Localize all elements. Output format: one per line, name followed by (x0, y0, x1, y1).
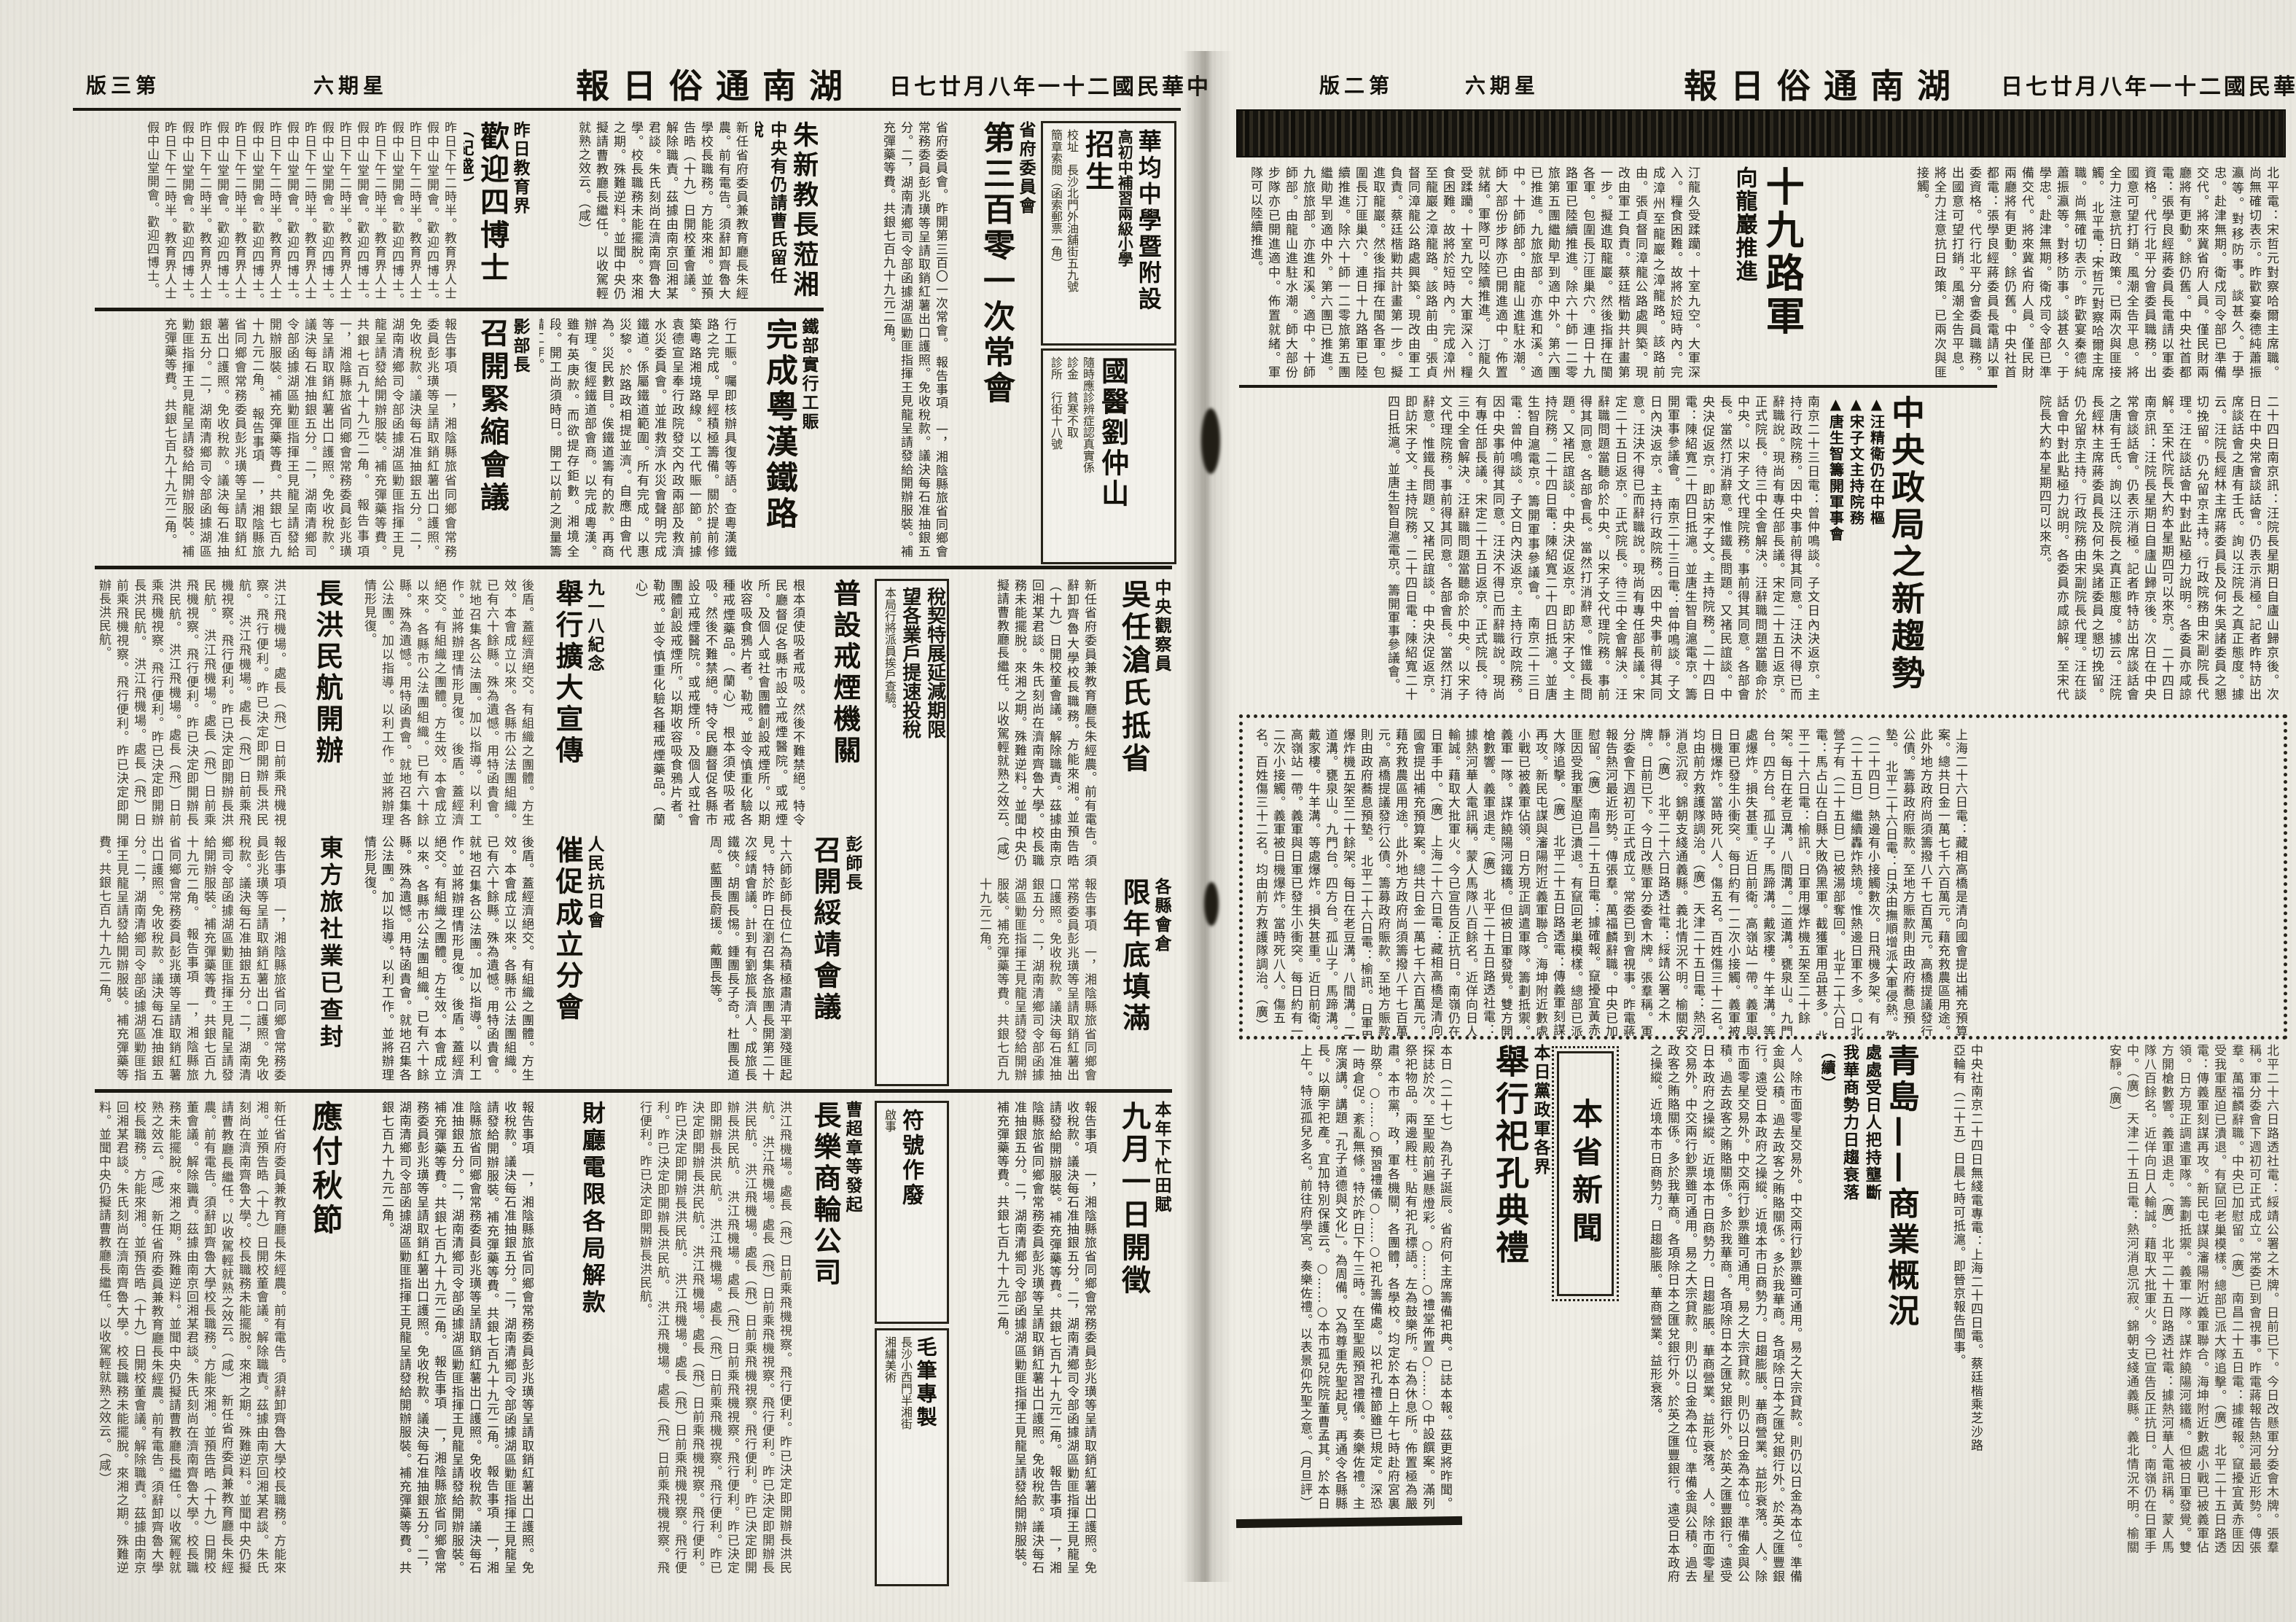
article-body-sacrifice: 本日（二十七）為孔子誕辰。省府何主席籌備祀典。已誌本報。茲更將昨聞。探誌於次。至… (1239, 1044, 1453, 1510)
article-text: 南京二十三日電：曾仲鳴談。子文日內決返京。主持行政院務。因中央事前得其同意。汪決… (1385, 395, 1819, 701)
article-body-railway: 行工賑。囑即核辦具復等語。查粵漢鐵路之完成。早經積極籌備。關於提前修築粵路湘境路… (539, 318, 738, 558)
article-text: 本日（二十七）為孔子誕辰。省府何主席籌備祀典。已誌本報。茲更將昨聞。探誌於次。至… (1297, 1044, 1452, 1510)
headline-main: 普設戒煙機關 (829, 579, 860, 827)
article-text: 洪江飛機場。處長（飛）日前乘飛機視察。飛行便利。昨已決定即開辦長洪民航。 洪江飛… (637, 1101, 792, 1575)
headline-main: 朱新教長蒞湘 (789, 121, 818, 300)
ad-school: 華均中學暨附設 高初中補習兩級小學 招生 校址 長沙北門外油舖街五九號 簡章索閱… (1041, 121, 1176, 346)
headline-sub: 我華商勢力日趨衰落 (1838, 1044, 1860, 1452)
headline-sub: 向龍巖推進 (1729, 166, 1760, 407)
dateline-right: 中華民國二十一年八月廿七日 (2001, 69, 2296, 101)
article-body-qingdao-wire: 中央社南京二十四日無綫電專電：上海二十四日電。蔡廷楷乘芝沙路亞輪有（二十五）日晨… (1923, 1044, 1984, 1452)
headline-main: 舉行擴大宣傳 (551, 579, 582, 827)
headline-kicker: 本年下忙田賦 (1149, 1101, 1172, 1392)
headline-main: 召開綏靖會議 (809, 835, 840, 1082)
wire-briefs: 上海二十六日電：藏相高橋是清向國會提出補充預算案。總共日金一萬七千六百萬元。藉充… (1243, 718, 1977, 1040)
page-gutter (1182, 51, 1233, 1582)
article-body-autumn: 新任省府委員兼教育廳長朱經農。前有電告。須辭卸齊魯大學校長職務。方能來湘。並預告… (95, 1101, 287, 1575)
article-body-treasury: 報告事項 一，湘陰縣旅省同鄉會常務委員彭兆璜等呈請取銷紅薯出口護照。免收稅款。議… (350, 1101, 535, 1575)
headline-main: 九月一日開徵 (1117, 1101, 1149, 1392)
article-text: 報告事項 一，湘陰縣旅省同鄉會常務委員彭兆璜等呈請取銷紅薯出口護照。免收稅款。議… (977, 878, 1096, 1082)
article-text: 新任省府委員兼教育廳長朱經農。前有電告。須辭卸齊魯大學校長職務。方能來湘。並預告… (96, 1101, 286, 1575)
weekday-label-left: 星期六 (313, 70, 388, 99)
headline-sub: （續） (1817, 1044, 1838, 1452)
headline-changle-shipping: 曹超章等發起 長樂商輪公司 (799, 1101, 863, 1392)
headline-sub: 中央有仍請曹氏留任說 (755, 121, 789, 300)
section-rule (1239, 385, 1997, 388)
masthead-right: 湖南通俗日報 (1684, 60, 1964, 108)
tax-org: 長沙省會稅務徵收局通告 (947, 587, 949, 1086)
scan-smudge (1201, 408, 1220, 474)
inked-banner (1236, 109, 2286, 157)
headline-sacrifice: 本日黨政軍各界 舉行祀孔典禮 (1459, 1044, 1551, 1379)
section-title: 本省新聞 (1563, 1098, 1608, 1249)
article-text: 二十四日南京訊：汪院長星期日自廬山歸京後。次日在中央常會談話會。仍表示消極。記者… (2037, 395, 2279, 701)
tax-note: 本局行將派員挨戶查驗。 (881, 587, 897, 1086)
section-local-news: 本省新聞 (1557, 1051, 1614, 1296)
headline-kicker: 昨日教育界 (508, 121, 531, 300)
article-text: 報告事項 一，湘陰縣旅省同鄉會常務委員彭兆璜等呈請取銷紅薯出口護照。免收稅款。議… (379, 1101, 534, 1575)
headline-provincial-council: 省府委員會 第三百零一次常會 (953, 121, 1036, 558)
headline-welcome-doctors: 昨日教育界 歡迎四博士 （紀盛） (464, 121, 531, 300)
article-body-welcome: 昨日下午二時半。教育界人士假中山堂開會。歡迎四博士。 昨日下午二時半。教育界人士… (95, 121, 458, 300)
headline-kicker: 省府委員會 (1014, 121, 1036, 558)
headline-autumn: 應付秋節 (293, 1101, 343, 1319)
headline-austerity-meeting: 影部長 召開緊縮會議 (464, 318, 531, 558)
ad-school-enroll: 招生 (1079, 129, 1114, 346)
headline-wu-arrival: 中央觀察員 吳任滄氏抵省 (1104, 579, 1172, 867)
page-left: 第三版 星期六 湖南通俗日報 中華民國二十一年八月廿七日 華均中學暨附設 高初中… (73, 51, 1181, 1604)
scan-smudge (1204, 882, 1219, 926)
edition-label-left: 第三版 (86, 70, 160, 99)
article-body-qingdao: 人。除市面零星交易外。中交兩行鈔票雖可通用。易之大宗貸款。則仍以日金為本位。準備… (1618, 1044, 1803, 1583)
article-text: 報告事項 一，湘陰縣旅省同鄉會常務委員彭兆璜等呈請取銷紅薯出口護照。免收稅款。議… (994, 1101, 1096, 1575)
headline-opium: 普設戒煙機關 (812, 579, 860, 827)
headline-main: 十九路軍 (1760, 166, 1803, 407)
headline-qingdao: 青島——商業概況 處處受日人把持壟斷 我華商勢力日趨衰落 （續） (1811, 1044, 1918, 1452)
article-body-route19-b: 汀龍久受蹂躪。十室九空。大軍深入。糧食困難。故將於短時內。完成漳州至龍巖之漳龍路… (1239, 166, 1701, 379)
headline-sep18: 九一八紀念 舉行擴大宣傳 (541, 579, 605, 827)
headline-kicker: 各縣會倉 (1149, 878, 1172, 1082)
article-body-central-b: 南京二十三日電：曾仲鳴談。子文日內決返京。主持行政院務。因中央事前得其同意。汪決… (1239, 395, 1821, 701)
wire-brief: 北平二十六日電：榆訊。日軍用爆炸機五架至二十餘架。每日在老豆溝。八間溝。二道溝。… (1690, 728, 1827, 1040)
ad-tax-notice: 長沙省會稅務徵收局通告 稅契特展延減期限 望各業戶提速投稅 本局行將派員挨戶查驗… (875, 579, 949, 1086)
header-rule (73, 108, 1181, 111)
ad-school-note: 簡章索閱（函索郵票一角） (1047, 129, 1063, 346)
article-text: 行工賑。囑即核辦具復等語。查粵漢鐵路之完成。早經積極籌備。關於提前修築粵路湘境路… (539, 318, 736, 558)
article-text: 人。除市面零星交易外。中交兩行鈔票雖可通用。易之大宗貸款。則仍以日金為本位。準備… (1647, 1044, 1802, 1583)
headline-granary: 各縣會倉 限年底填滿 (1104, 878, 1172, 1082)
headline-railway: 鐵部實行工賑 完成粵漢鐵路 (743, 318, 819, 558)
headline-land-tax: 本年下忙田賦 九月一日開徵 (1104, 1101, 1172, 1392)
article-body-opium: 根本須使吸者戒吸。然後不難禁絕。特令民廳督促各縣市設立戒煙醫院。或戒煙所。及個人… (609, 579, 806, 827)
newspaper-scan: 第三版 星期六 湖南通俗日報 中華民國二十一年八月廿七日 華均中學暨附設 高初中… (0, 0, 2296, 1622)
headline-main: 東方旅社業已查封 (316, 835, 343, 1082)
headline-main: 歡迎四博士 (475, 121, 508, 300)
article-body-austerity: 報告事項 一，湘陰縣旅省同鄉會常務委員彭兆璜等呈請取銷紅薯出口護照。免收稅款。議… (95, 318, 458, 558)
section-rule (95, 308, 824, 311)
headline-bullet: ▲唐生智籌開軍事會 (1827, 395, 1846, 706)
headline-central-politics: 中央政局之新趨勢 ▲汪精衛仍在中樞 ▲宋子文主持院務 ▲唐生智籌開軍事會 ▲李濟… (1827, 395, 1924, 706)
article-text: 昨日下午二時半。教育界人士假中山堂開會。歡迎四博士。 昨日下午二時半。教育界人士… (144, 121, 456, 300)
article-text: 洪江飛機場。處長（飛）日前乘飛機視察。飛行便利。昨已決定即開辦長洪民航。 洪江飛… (96, 579, 286, 827)
article-text: 新任省府委員兼教育廳長朱經農。前有電告。須辭卸齊魯大學校長職務。方能來湘。並預告… (576, 121, 748, 300)
headline-peng-meeting: 彭師長 召開綏靖會議 (799, 835, 863, 1082)
article-body-peng: 十六師彭師長位仁為積極肅清平瀏殘匪起見。特於昨日在瀏召集各旅團長開第二十次綏靖會… (609, 835, 793, 1082)
headline-bullet: ▲宋子文主持院務 (1846, 395, 1866, 706)
headline-main: 財廳電限各局解款 (579, 1101, 605, 1392)
article-text: 後盾。蓋經濟絕交。有組織之團體。方生效。本會成立以來。各縣市公法團組織。已有六十… (362, 835, 534, 1082)
article-body-route19-a: 北平電：宋哲元對察哈爾主席職。尚無確切表示。昨歡宴秦德純蕭振瀛等。對移防事。談甚… (1808, 166, 2280, 379)
headline-treasury: 財廳電限各局解款 (541, 1101, 605, 1392)
headline-main: 舉行祀孔典禮 (1491, 1044, 1528, 1379)
article-text: 汀龍久受蹂躪。十室九空。大軍深入。糧食困難。故將於短時內。完成漳州至龍巖之漳龍路… (1248, 166, 1700, 379)
article-body-granary: 報告事項 一，湘陰縣旅省同鄉會常務委員彭兆璜等呈請取銷紅薯出口護照。免收稅款。議… (953, 878, 1098, 1082)
ad-school-addr: 校址 長沙北門外油舖街五九號 (1063, 129, 1079, 346)
article-text: 報告事項 一，湘陰縣旅省同鄉會常務委員彭兆璜等呈請取銷紅薯出口護照。免收稅款。議… (162, 318, 456, 558)
headline-main: 限年底填滿 (1118, 878, 1149, 1082)
headline-bullet: ▲汪精衛仍在中樞 (1866, 395, 1886, 706)
headline-sub: 處處受日人把持壟斷 (1860, 1044, 1883, 1452)
headline-main: 第三百零一次常會 (978, 121, 1014, 558)
ad-doctor-title: 國醫劉仲山 (1096, 356, 1129, 564)
article-body-central-a: 二十四日南京訊：汪院長星期日自廬山歸京後。次日在中央常會談話會。仍表示消極。記者… (1929, 395, 2280, 701)
article-body-provincial: 省府委員會。昨開第三百〇一次常會。 報告事項 一，湘陰縣旅省同鄉會常務委員彭兆璜… (824, 121, 949, 558)
ad-school-title: 華均中學暨附設 (1134, 129, 1162, 346)
ad-brush-title: 毛筆專製 (913, 1336, 938, 1586)
headline-main: 長洪民航開辦 (311, 579, 343, 827)
article-text: 報告事項 一，湘陰縣旅省同鄉會常務委員彭兆璜等呈請取銷紅薯出口護照。免收稅款。議… (96, 835, 286, 1082)
headline-kicker: 影部長 (508, 318, 531, 558)
article-text: 中央社南京二十四日無綫電專電：上海二十四日電。蔡廷楷乘芝沙路亞輪有（二十五）日晨… (1951, 1044, 1983, 1452)
tax-headline-2: 望各業戶提速投稅 (897, 587, 922, 1086)
masthead-left: 湖南通俗日報 (576, 60, 856, 108)
article-body-zhu: 新任省府委員兼教育廳長朱經農。前有電告。須辭卸齊魯大學校長職務。方能來湘。並預告… (539, 121, 749, 300)
article-text: 後盾。蓋經濟絕交。有組織之團體。方生效。本會成立以來。各縣市公法團組織。已有六十… (362, 579, 534, 827)
heavy-end-rule (1236, 1516, 1462, 1528)
article-text: 新任省府委員兼教育廳長朱經農。前有電告。須辭卸齊魯大學校長職務。方能來湘。並預告… (994, 579, 1096, 867)
tax-headline-1: 稅契特展延減期限 (922, 587, 947, 1086)
headline-kicker: 九一八紀念 (582, 579, 605, 827)
headline-sub: （紀盛） (464, 121, 475, 300)
wire-briefs-box: 上海二十六日電：藏相高橋是清向國會提出補充預算案。總共日金一萬七千六百萬元。藉充… (1239, 714, 2287, 1040)
section-rule (95, 1089, 1172, 1093)
article-body-more-briefs: 北平二十六日路透社電：綏靖公署之木牌。日前已下。今日改懸軍分委會木牌。張羣稱。軍… (1990, 1044, 2280, 1554)
article-text: 北平電：宋哲元對察哈爾主席職。尚無確切表示。昨歡宴秦德純蕭振瀛等。對移防事。談甚… (1914, 166, 2279, 379)
article-lead: 省府委員會。昨開第三百〇一次常會。 (933, 121, 948, 351)
dateline-left: 中華民國二十一年八月廿七日 (889, 69, 1211, 101)
headline-kicker: 中央觀察員 (1149, 579, 1172, 867)
headline-route19: 十九路軍 向龍巖推進 (1707, 166, 1803, 407)
ad-fuhao-title: 符號作廢 (897, 1109, 924, 1324)
ad-fuhao: 符號作廢 啟事 (875, 1101, 949, 1324)
article-body-wu: 新任省府委員兼教育廳長朱經農。前有電告。須辭卸齊魯大學校長職務。方能來湘。並預告… (953, 579, 1098, 867)
headline-main: 吳任滄氏抵省 (1117, 579, 1149, 867)
ad-fuhao-note: 啟事 (881, 1109, 897, 1324)
article-body-sep18: 後盾。蓋經濟絕交。有組織之團體。方生效。本會成立以來。各縣市公法團組織。已有六十… (350, 579, 535, 827)
ad-brush-line2: 湘繡美術 (881, 1336, 897, 1586)
section-rule (95, 566, 1172, 569)
headline-zhu-arrival: 朱新教長蒞湘 中央有仍請曹氏留任說 (755, 121, 818, 300)
article-text: 根本須使吸者戒吸。然後不難禁絕。特令民廳督促各縣市設立戒煙醫院。或戒煙所。及個人… (633, 579, 805, 827)
ad-school-line2: 高初中補習兩級小學 (1114, 129, 1134, 346)
headline-kicker: 彭師長 (840, 835, 863, 1082)
article-body-branch: 後盾。蓋經濟絕交。有組織之團體。方生效。本會成立以來。各縣市公法團組織。已有六十… (350, 835, 535, 1082)
ad-doctor-line3: 診所 行街十八號 (1047, 356, 1063, 564)
headline-kicker: 人民抗日會 (582, 835, 605, 1082)
headline-branch: 人民抗日會 催促成立分會 (541, 835, 605, 1082)
headline-main: 催促成立分會 (551, 835, 582, 1082)
headline-main: 長樂商輪公司 (809, 1101, 840, 1392)
edition-label-right: 第二版 (1319, 70, 1394, 99)
page-right: 第二版 星期六 湖南通俗日報 中華民國二十一年八月廿七日 北平電：宋哲元對察哈爾… (1232, 51, 2289, 1604)
ad-doctor-line1: 隨時應診辨症認真實係 (1079, 356, 1096, 564)
article-body-land-tax: 報告事項 一，湘陰縣旅省同鄉會常務委員彭兆璜等呈請取銷紅薯出口護照。免收稅款。議… (953, 1101, 1098, 1575)
headline-main: 中央政局之新趨勢 (1886, 395, 1924, 706)
headline-kicker: 本日黨政軍各界 (1528, 1044, 1551, 1379)
article-text: 十六師彭師長位仁為積極肅清平瀏殘匪起見。特於昨日在瀏召集各旅團長開第二十次綏靖會… (707, 835, 792, 1082)
headline-main: 青島——商業概況 (1883, 1044, 1918, 1452)
article-body-eastern: 報告事項 一，湘陰縣旅省同鄉會常務委員彭兆璜等呈請取銷紅薯出口護照。免收稅款。議… (95, 835, 287, 1082)
headline-eastern-hotel: 東方旅社業已查封 (293, 835, 343, 1082)
wire-brief: 天津二十五日電：熱河消息沉寂。錦朝支綫通義縣。義北情況不明。榆關安靜。（廣） (2106, 1044, 2139, 1554)
wire-brief: 北平二十六日電：榆訊。日軍用爆炸機五架至二十餘架。每日在老豆溝。八間溝。二道溝。… (1253, 728, 1372, 1040)
headline-changhong: 長洪民航開辦 (293, 579, 343, 827)
headline-kicker: 鐵部實行工賑 (797, 318, 819, 558)
ad-doctor: 國醫劉仲山 隨時應診辨症認真實係 診金 貧寒不取 診所 行街十八號 (1041, 348, 1176, 564)
ad-brush: 毛筆專製 長沙小西門半湘街 湘繡美術 (875, 1328, 949, 1586)
headline-kicker: 曹超章等發起 (840, 1101, 863, 1392)
ad-doctor-line2: 診金 貧寒不取 (1063, 356, 1079, 564)
headline-main: 應付秋節 (308, 1101, 343, 1319)
article-body-changle: 洪江飛機場。處長（飛）日前乘飛機視察。飛行便利。昨已決定即開辦長洪民航。 洪江飛… (609, 1101, 793, 1575)
ad-brush-line1: 長沙小西門半湘街 (897, 1336, 913, 1586)
weekday-label-right: 星期六 (1465, 70, 1539, 99)
headline-main: 完成粵漢鐵路 (761, 318, 797, 558)
article-body-changhong: 洪江飛機場。處長（飛）日前乘飛機視察。飛行便利。昨已決定即開辦長洪民航。 洪江飛… (95, 579, 287, 827)
headline-main: 召開緊縮會議 (475, 318, 508, 558)
